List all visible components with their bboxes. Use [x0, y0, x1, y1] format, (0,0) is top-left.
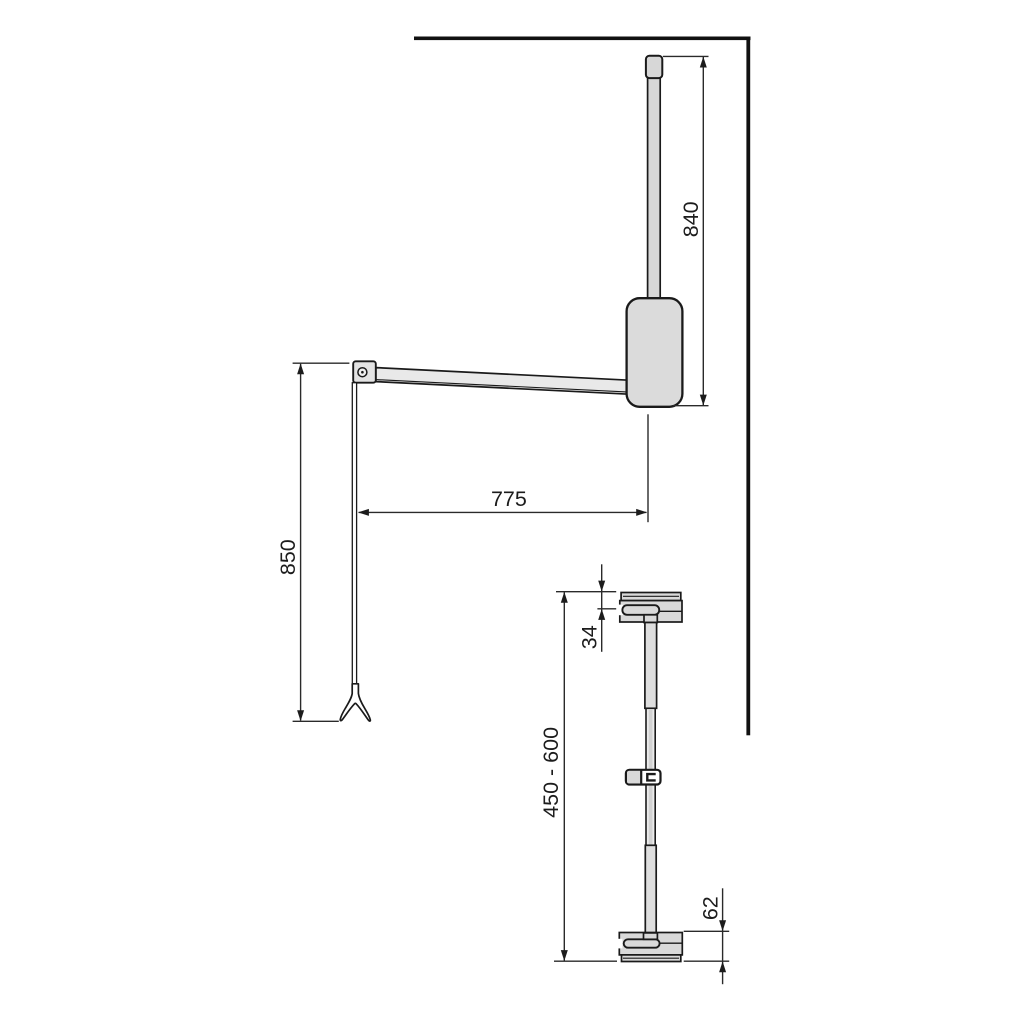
svg-text:850: 850 — [276, 539, 300, 575]
svg-text:34: 34 — [578, 625, 602, 649]
svg-text:62: 62 — [698, 896, 722, 920]
svg-text:775: 775 — [491, 487, 527, 511]
svg-text:840: 840 — [679, 201, 703, 237]
svg-text:450 - 600: 450 - 600 — [539, 727, 563, 818]
